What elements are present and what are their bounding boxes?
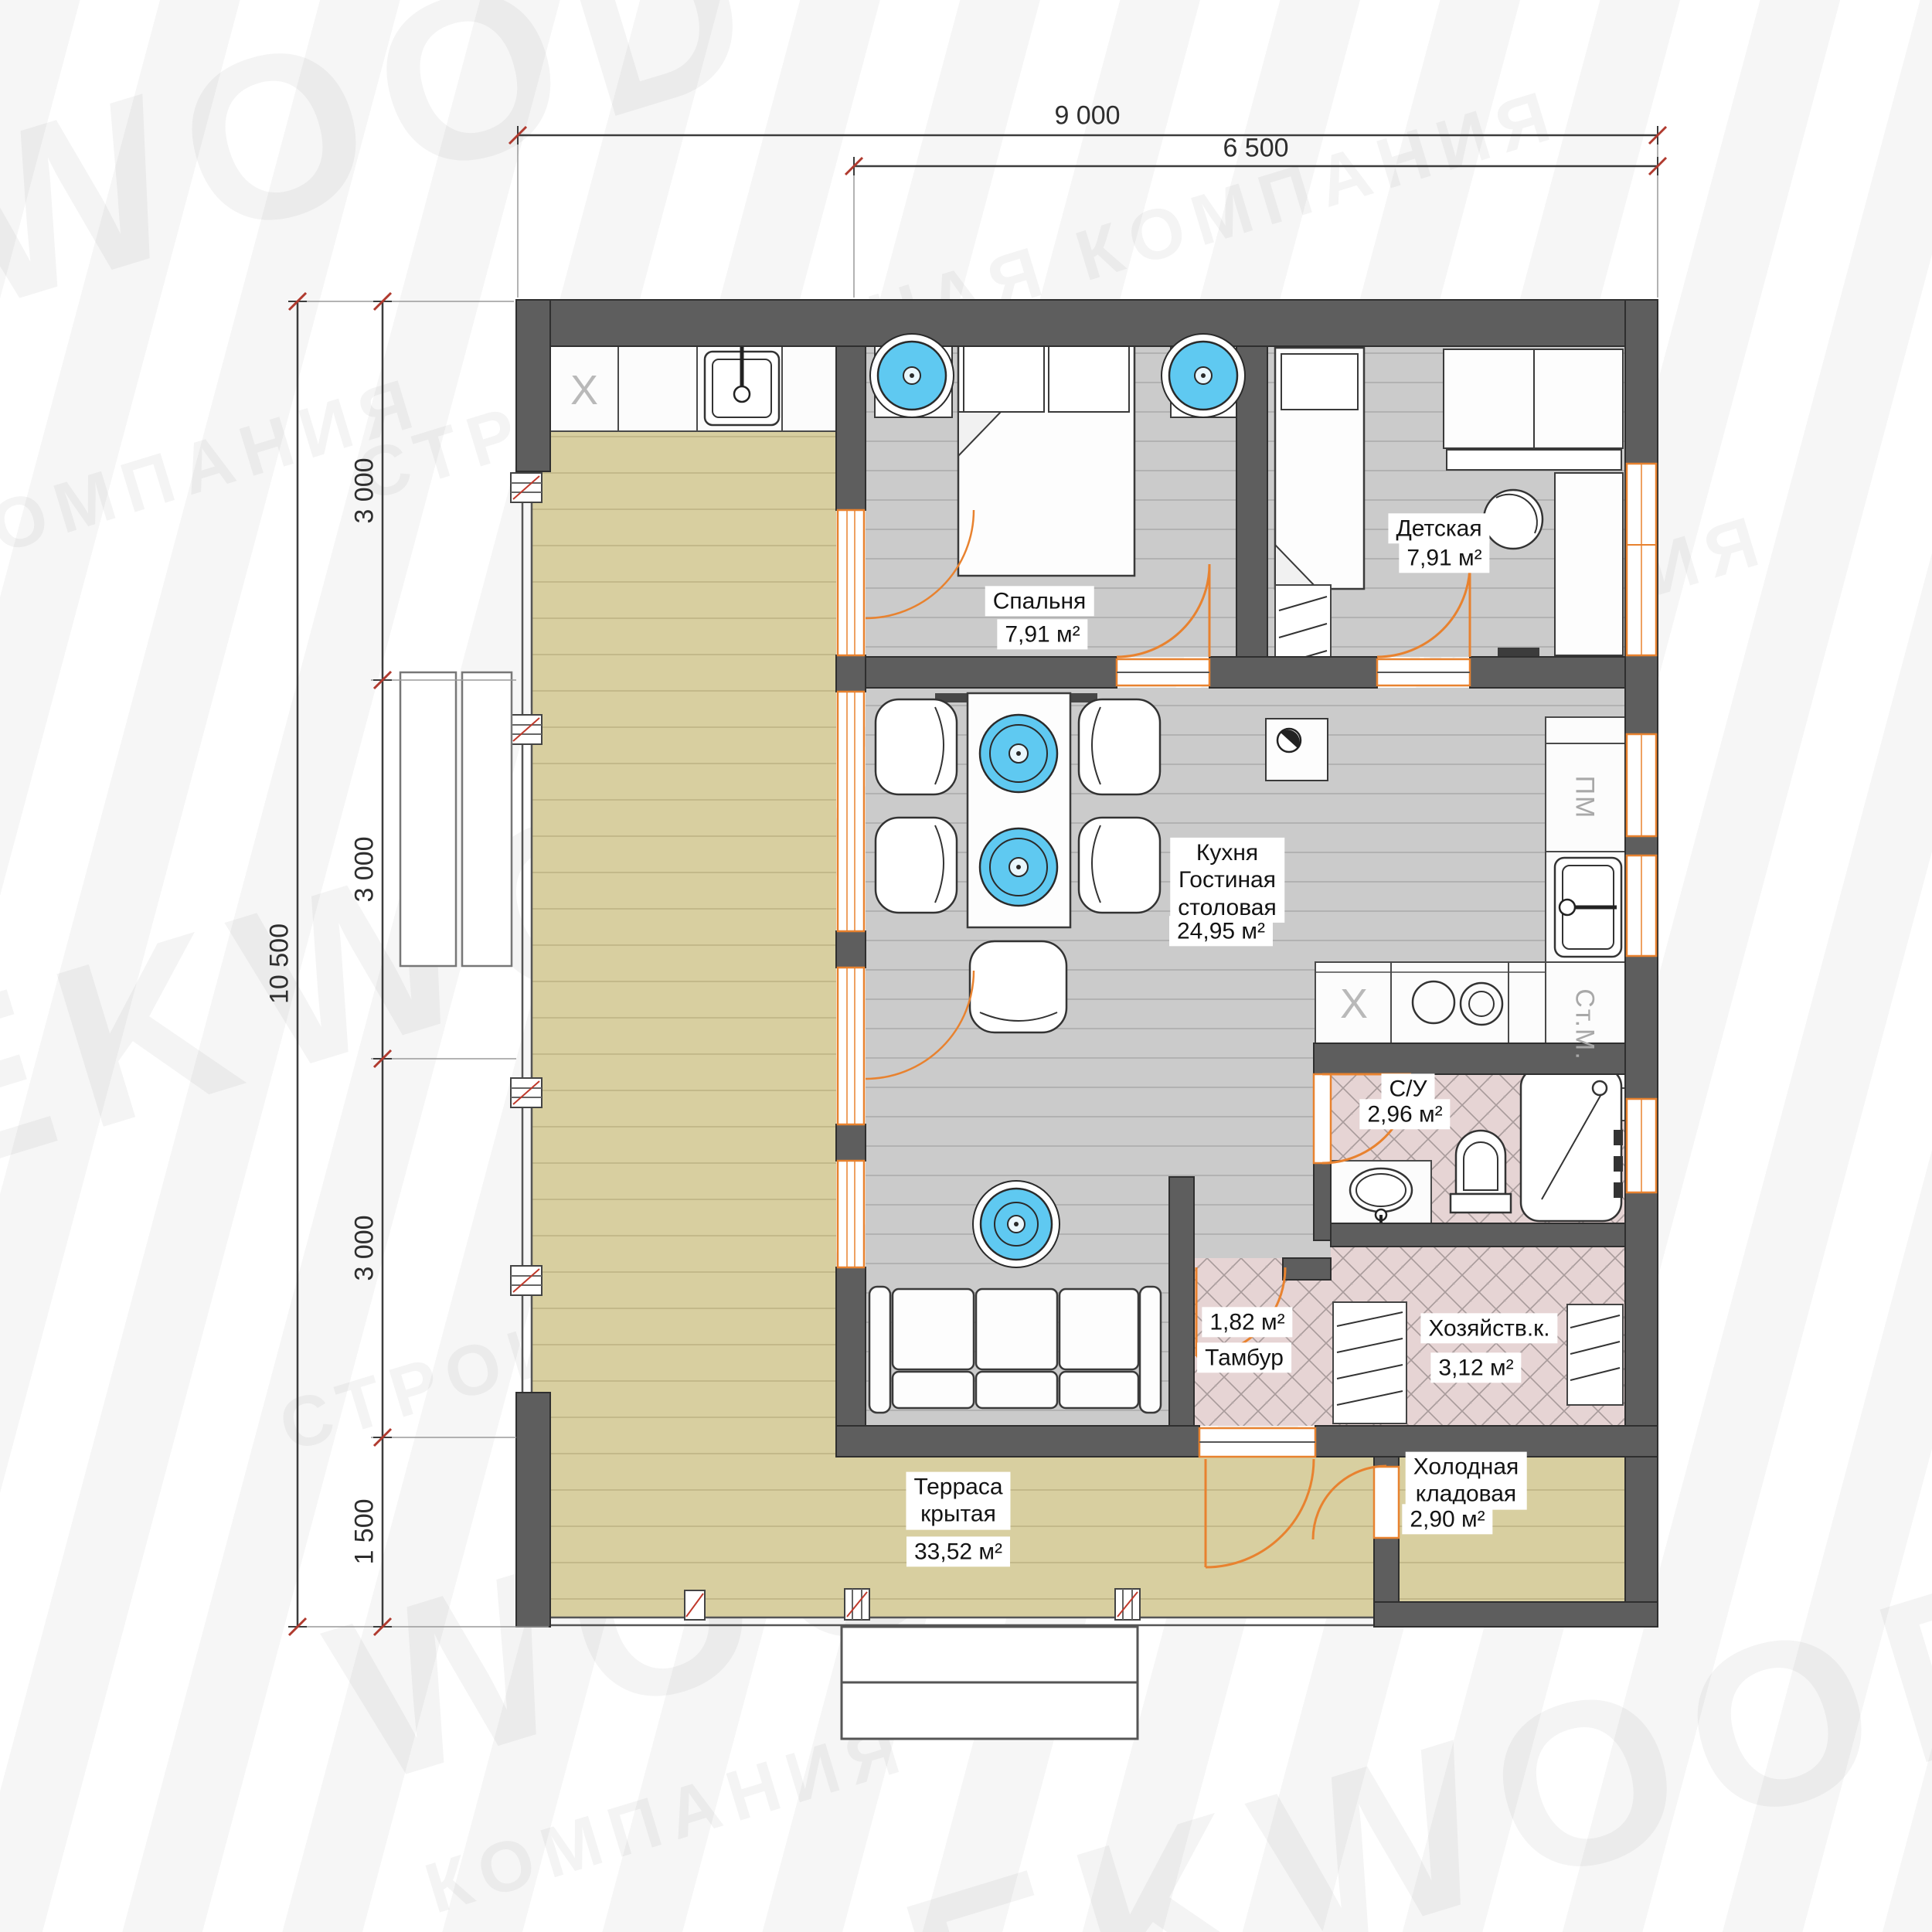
pendant-lamp: [980, 715, 1057, 792]
dim-total-width: 9 000: [1054, 101, 1120, 131]
dim-inner-width: 6 500: [1223, 134, 1288, 164]
tv-console: [1498, 648, 1539, 657]
left-outdoor-steps: [400, 672, 512, 966]
label-cold-area: 2,90 м²: [1402, 1504, 1492, 1534]
wall-bath-utility: [1331, 1223, 1625, 1247]
shower-valve: [1614, 1130, 1623, 1145]
label-tambour-area: 1,82 м²: [1202, 1307, 1292, 1337]
detector-unit: [1266, 719, 1328, 781]
ceiling-fan: [870, 334, 954, 417]
wall-bottom: [836, 1426, 1199, 1457]
wall-bath-left: [1314, 1163, 1331, 1240]
shower-valve: [1614, 1182, 1623, 1198]
wall-bedroom-bottom: [866, 657, 1117, 688]
label-kids-name: Детская: [1388, 513, 1489, 543]
label-terrace-area: 33,52 м²: [906, 1536, 1010, 1566]
terrace-faucet: [734, 386, 750, 402]
dim-segment: 1 500: [350, 1498, 380, 1564]
label-bathroom-area: 2,96 м²: [1359, 1099, 1450, 1129]
dim-segment: 3 000: [350, 836, 380, 902]
wall-left-stub: [516, 300, 550, 471]
dim-segment: 3 000: [350, 1215, 380, 1281]
ceiling-fan: [1162, 334, 1245, 417]
chair: [876, 699, 957, 794]
kitchen-faucet: [1560, 900, 1575, 915]
terrace-steps: [842, 1627, 1138, 1739]
wall-cold-bottom: [1374, 1602, 1658, 1627]
ceiling-fan: [973, 1181, 1060, 1267]
label-cold-name: Холодная кладовая: [1406, 1452, 1527, 1510]
wall-tambour-left: [1169, 1177, 1194, 1428]
chair: [1079, 699, 1160, 794]
pillow: [964, 342, 1044, 412]
toilet-tank: [1451, 1194, 1511, 1213]
wall-bottom-left-post: [516, 1393, 550, 1627]
sofa: [869, 1287, 1161, 1413]
wall-tambour-top: [1283, 1258, 1331, 1280]
label-kitchen-area: 24,95 м²: [1169, 916, 1273, 946]
pendant-lamp: [980, 828, 1057, 906]
label-washing-machine: Ст.М.: [1570, 988, 1600, 1061]
wardrobe-rod: [1447, 450, 1621, 470]
label-kids-area: 7,91 м²: [1399, 543, 1489, 573]
chair: [1079, 818, 1160, 913]
label-dishwasher: ПМ: [1570, 776, 1600, 820]
pillow: [1049, 342, 1129, 412]
undefined-unit-mark: X: [1340, 980, 1368, 1028]
dim-segment: 3 000: [350, 457, 380, 523]
label-utility-area: 3,12 м²: [1430, 1352, 1521, 1383]
pillow: [1281, 354, 1358, 410]
wall-top: [516, 300, 1658, 346]
label-bedroom-name: Спальня: [985, 586, 1094, 616]
label-utility-name: Хозяйств.к.: [1420, 1313, 1557, 1343]
undefined-unit-mark: X: [570, 366, 598, 414]
kids-desk: [1555, 473, 1623, 655]
label-tambour-name: Тамбур: [1197, 1342, 1291, 1372]
label-kitchen-name: Кухня Гостиная столовая: [1170, 838, 1284, 923]
shower-valve: [1614, 1156, 1623, 1172]
vanity-sink: [1350, 1168, 1412, 1212]
label-terrace-name: Терраса крытая: [906, 1472, 1010, 1530]
desk-chair: [1484, 490, 1543, 549]
floor-plan-page: WOOD КОМПАНИЯ СТРОИТЕЛЬНАЯ КОМПАНИЯ EKWO…: [0, 0, 1932, 1932]
chair: [970, 941, 1066, 1032]
chair: [876, 818, 957, 913]
label-bedroom-area: 7,91 м²: [997, 619, 1087, 649]
terrace-floor: [532, 346, 836, 1617]
dim-total-height: 10 500: [265, 923, 295, 1004]
